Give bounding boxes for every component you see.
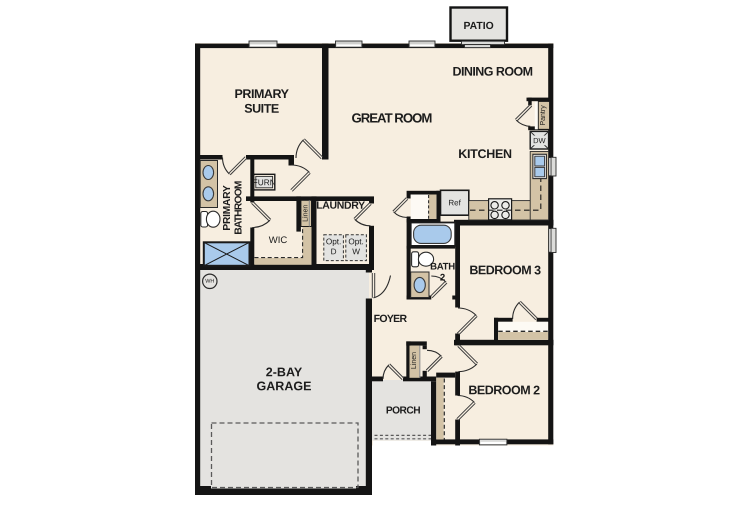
svg-text:PATIO: PATIO: [463, 21, 493, 32]
svg-text:Linen: Linen: [411, 352, 418, 369]
svg-text:GARAGE: GARAGE: [257, 379, 312, 393]
svg-text:WIC: WIC: [269, 235, 288, 246]
svg-text:PRIMARY: PRIMARY: [234, 87, 289, 101]
svg-text:PRIMARY: PRIMARY: [222, 185, 233, 231]
svg-text:GREAT ROOM: GREAT ROOM: [351, 110, 432, 125]
svg-text:Opt.: Opt.: [326, 237, 341, 246]
svg-text:FURN: FURN: [253, 177, 276, 187]
svg-text:Opt.: Opt.: [348, 237, 363, 246]
svg-text:LAUNDRY: LAUNDRY: [316, 200, 365, 212]
svg-text:WH: WH: [205, 279, 214, 285]
svg-text:2-BAY: 2-BAY: [266, 365, 303, 379]
svg-text:BEDROOM 3: BEDROOM 3: [469, 263, 541, 277]
svg-text:KITCHEN: KITCHEN: [458, 147, 512, 161]
svg-text:Ref: Ref: [448, 198, 461, 207]
svg-text:BEDROOM 2: BEDROOM 2: [468, 383, 540, 397]
svg-text:Pantry: Pantry: [540, 105, 547, 126]
svg-text:W: W: [352, 247, 360, 256]
svg-text:FOYER: FOYER: [374, 313, 408, 325]
svg-text:SUITE: SUITE: [244, 102, 279, 116]
svg-text:DINING ROOM: DINING ROOM: [452, 65, 532, 79]
svg-text:PORCH: PORCH: [386, 405, 420, 416]
svg-text:Linen: Linen: [303, 205, 310, 222]
svg-text:D: D: [331, 247, 337, 256]
svg-text:2: 2: [440, 272, 445, 283]
svg-text:BATH: BATH: [430, 261, 455, 272]
svg-text:BATHROOM: BATHROOM: [234, 181, 245, 234]
svg-text:DW: DW: [533, 136, 546, 145]
